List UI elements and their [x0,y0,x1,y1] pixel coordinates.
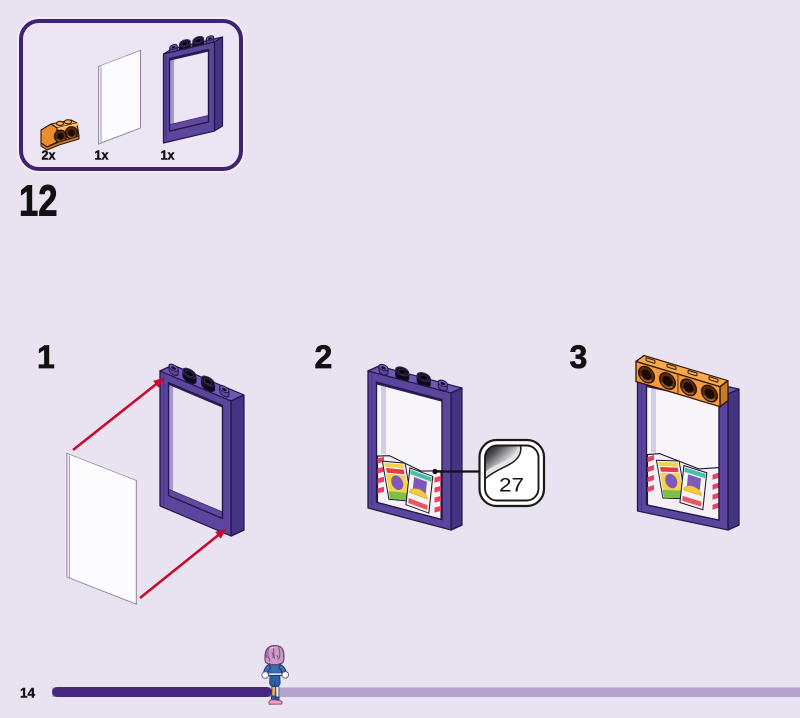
svg-text:3: 3 [570,339,588,375]
svg-text:1x: 1x [95,149,109,163]
svg-text:2: 2 [315,339,333,375]
svg-text:27: 27 [499,476,524,497]
svg-text:2x: 2x [42,149,56,163]
svg-text:1x: 1x [161,149,175,163]
svg-text:12: 12 [19,178,58,226]
svg-text:1: 1 [37,339,55,375]
svg-text:14: 14 [20,686,36,701]
